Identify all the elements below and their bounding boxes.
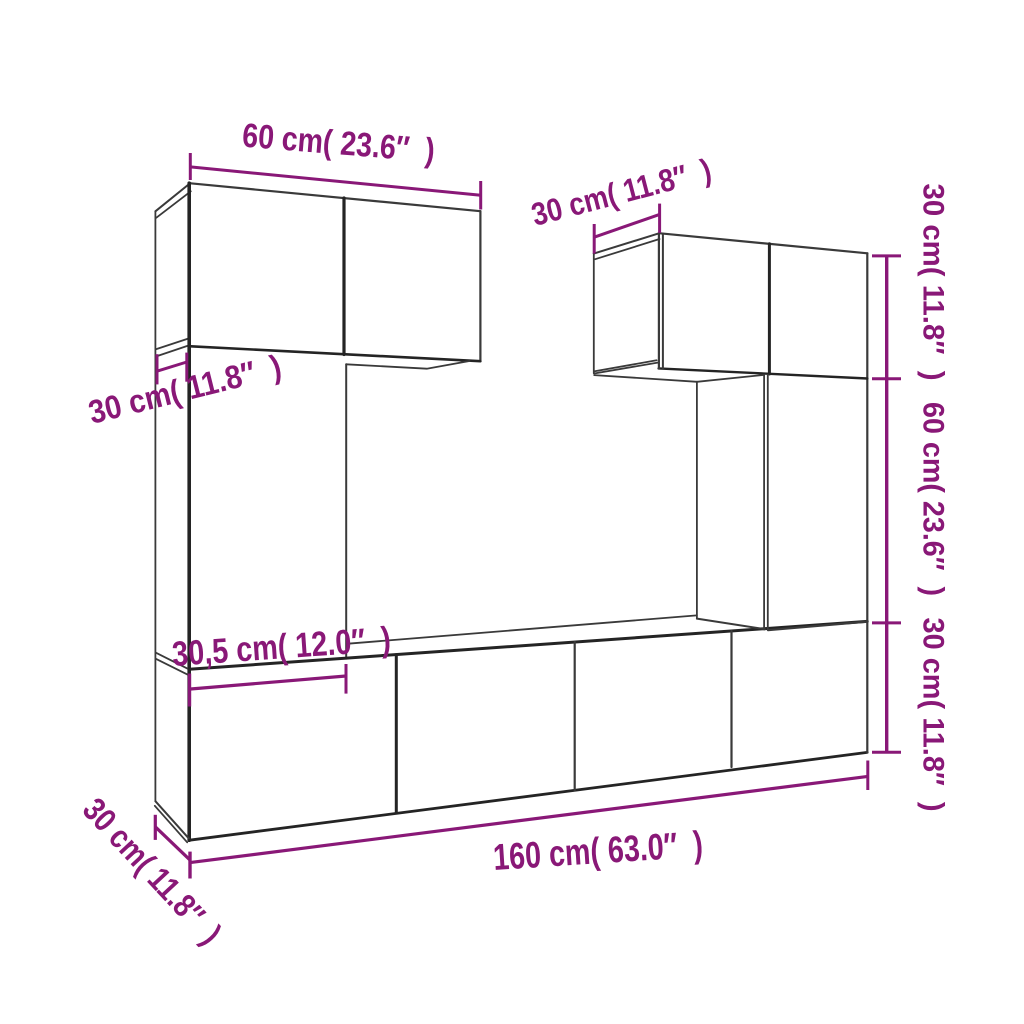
svg-text:30 cm( 11.8″ ): 30 cm( 11.8″ ): [917, 184, 950, 381]
svg-text:30 cm( 11.8″ ): 30 cm( 11.8″ ): [917, 618, 950, 812]
svg-text:60 cm( 23.6″ ): 60 cm( 23.6″ ): [917, 402, 950, 596]
